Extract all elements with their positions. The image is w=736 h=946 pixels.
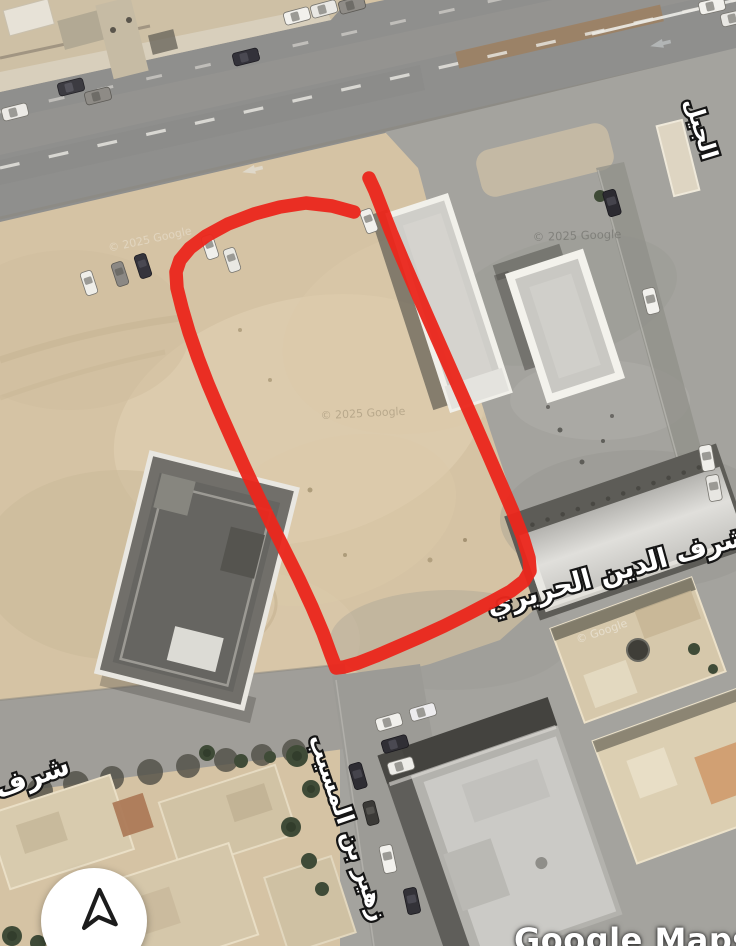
satellite-map-canvas[interactable]: © 2025 Google © 2025 Google © 2025 Googl… bbox=[0, 0, 736, 946]
navigation-arrow-icon bbox=[84, 890, 116, 928]
google-maps-watermark: Google Maps bbox=[514, 921, 736, 946]
google-maps-satellite-view: © 2025 Google © 2025 Google © 2025 Googl… bbox=[0, 0, 736, 946]
